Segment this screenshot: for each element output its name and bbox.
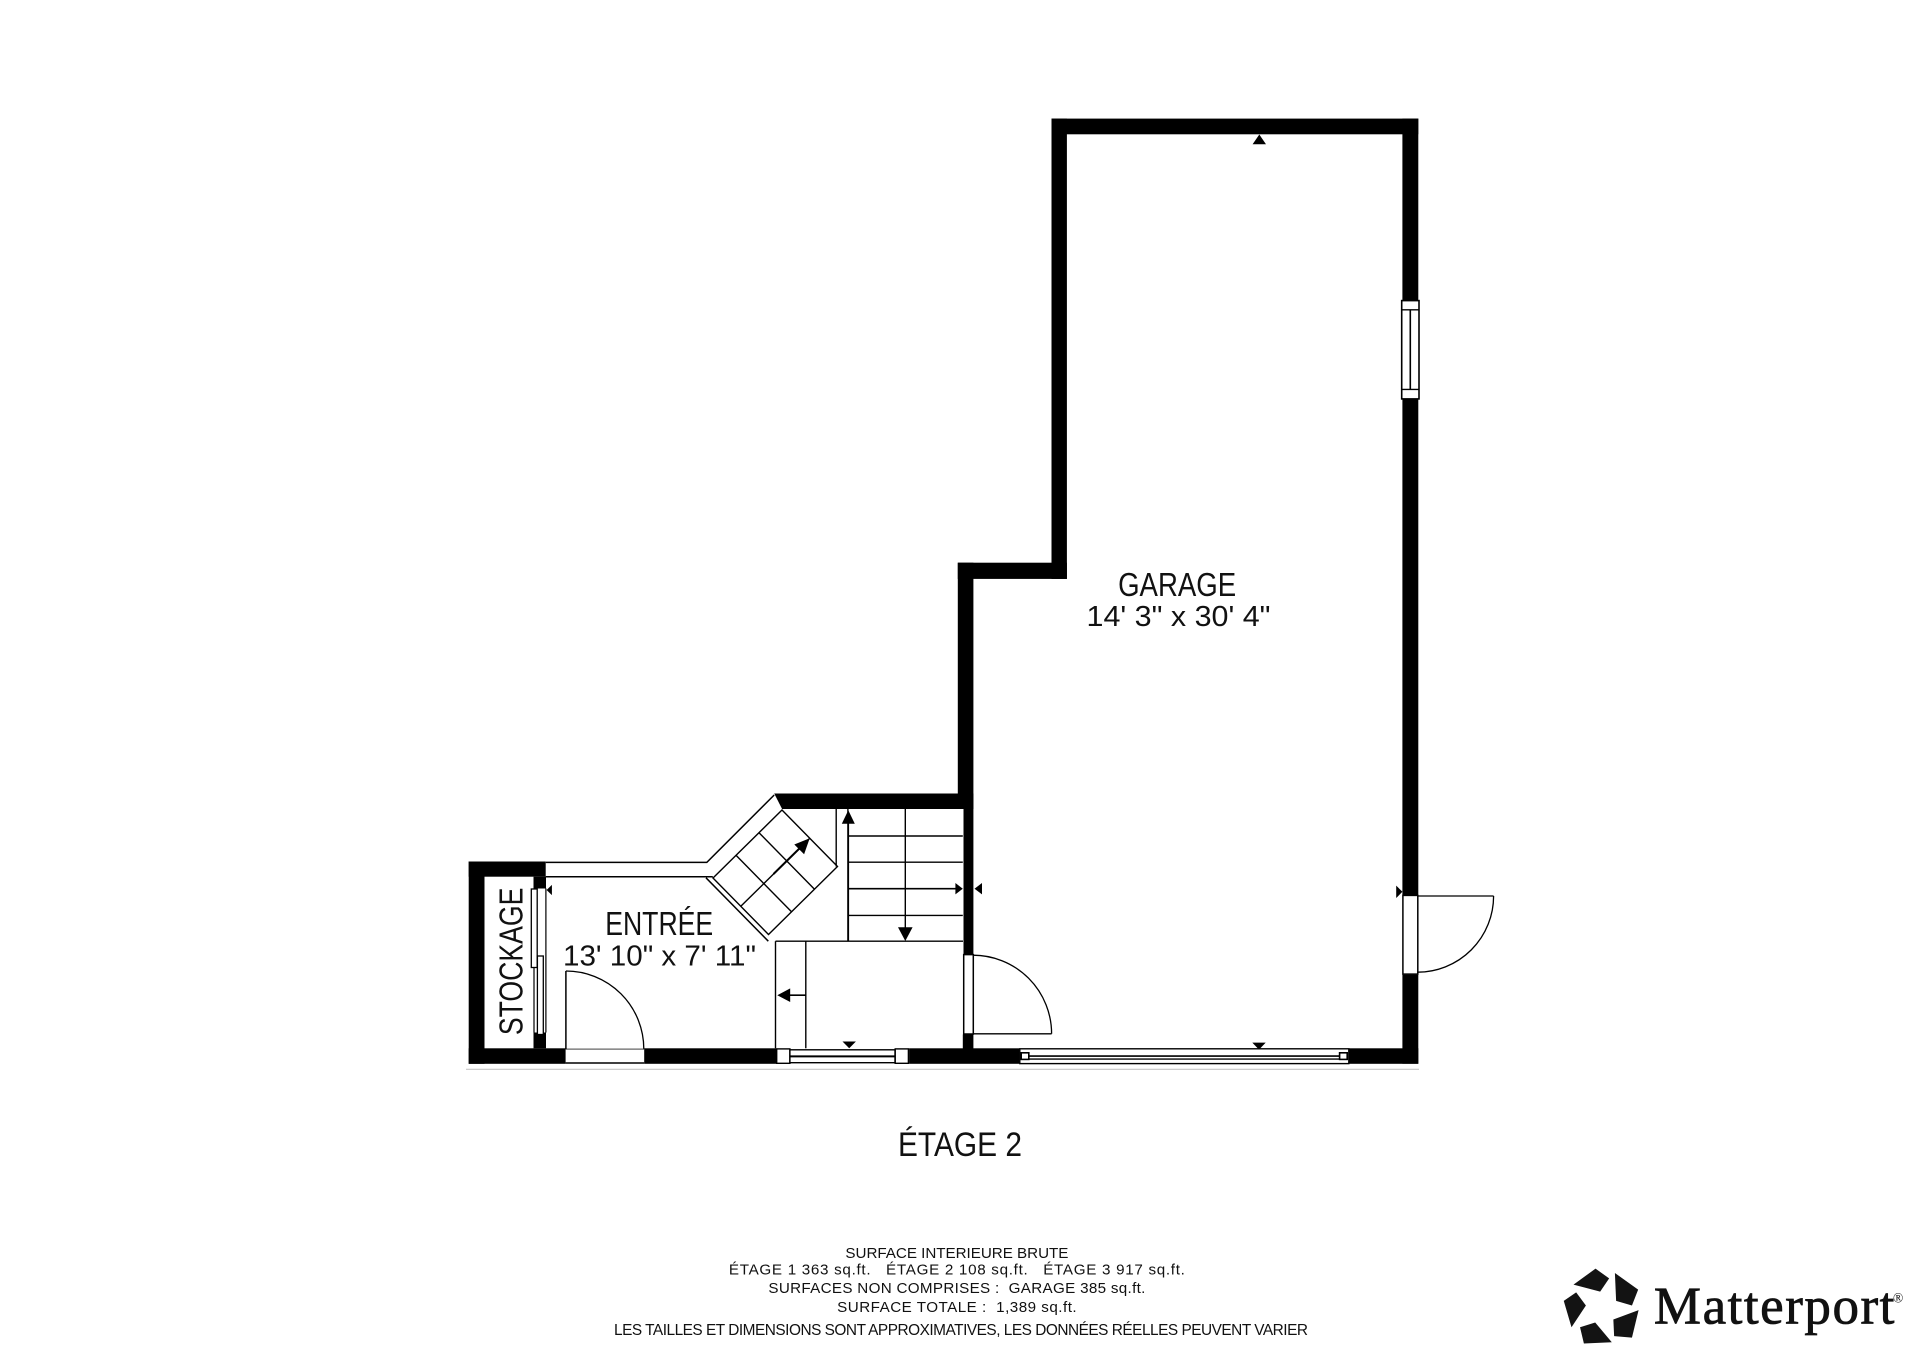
svg-text:®: ® xyxy=(1893,1291,1903,1306)
svg-text:SURFACE INTERIEURE BRUTE: SURFACE INTERIEURE BRUTE xyxy=(845,1245,1068,1262)
svg-text:Matterport: Matterport xyxy=(1654,1277,1895,1335)
svg-text:14' 3" x 30' 4": 14' 3" x 30' 4" xyxy=(1087,601,1271,633)
svg-text:13' 10" x 7' 11": 13' 10" x 7' 11" xyxy=(563,941,756,973)
svg-text:ENTRÉE: ENTRÉE xyxy=(605,906,713,943)
svg-text:ÉTAGE 1 363 sq.ft. ÉTAGE 2 1: ÉTAGE 1 363 sq.ft. ÉTAGE 2 108 sq.ft. ÉT… xyxy=(729,1262,1185,1279)
svg-text:ÉTAGE 2: ÉTAGE 2 xyxy=(898,1125,1022,1164)
svg-text:GARAGE: GARAGE xyxy=(1118,567,1236,604)
svg-text:SURFACE TOTALE : 1,389 sq.ft.: SURFACE TOTALE : 1,389 sq.ft. xyxy=(837,1299,1077,1316)
svg-text:STOCKAGE: STOCKAGE xyxy=(492,888,529,1036)
svg-text:LES TAILLES ET DIMENSIONS SONT: LES TAILLES ET DIMENSIONS SONT APPROXIMA… xyxy=(614,1322,1308,1339)
svg-text:SURFACES NON COMPRISES : GARA: SURFACES NON COMPRISES : GARAGE 385 sq.f… xyxy=(768,1280,1145,1297)
